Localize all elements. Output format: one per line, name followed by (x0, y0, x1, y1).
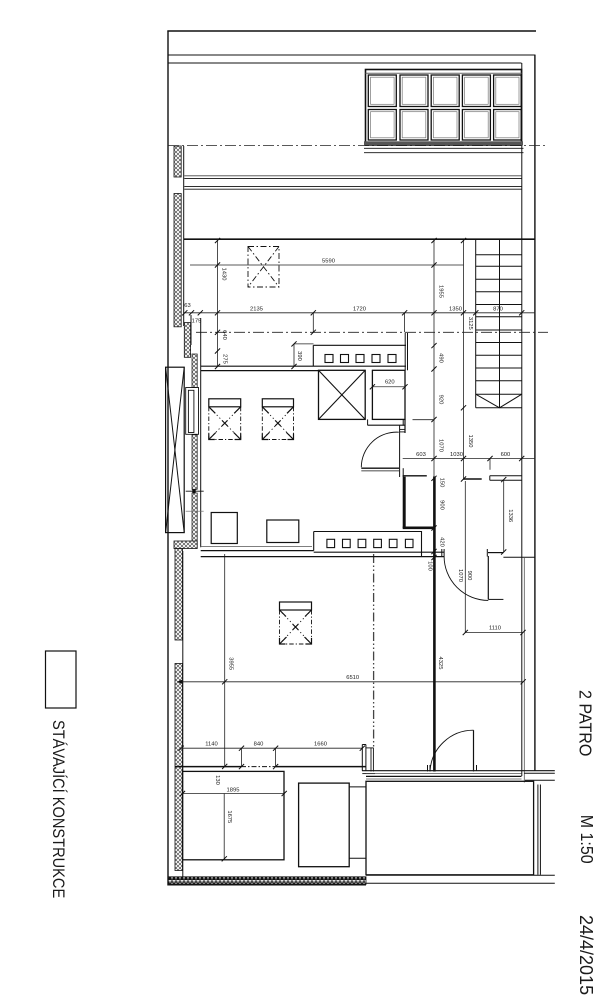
svg-text:840: 840 (254, 742, 264, 748)
svg-text:600: 600 (501, 452, 511, 458)
svg-text:420: 420 (439, 537, 445, 547)
svg-text:620: 620 (385, 380, 395, 386)
svg-text:920: 920 (438, 395, 444, 405)
svg-text:1660: 1660 (314, 742, 327, 748)
svg-text:1675: 1675 (226, 810, 232, 823)
svg-text:100: 100 (427, 561, 433, 571)
svg-text:900: 900 (439, 500, 445, 510)
svg-text:1140: 1140 (205, 742, 217, 748)
svg-text:2 PATRO: 2 PATRO (575, 690, 595, 756)
svg-text:3125: 3125 (467, 317, 473, 330)
svg-text:900: 900 (466, 571, 472, 581)
svg-text:1336: 1336 (507, 509, 513, 522)
svg-text:150: 150 (439, 478, 445, 488)
svg-text:1430: 1430 (221, 268, 227, 281)
svg-text:130: 130 (214, 775, 220, 785)
svg-text:6510: 6510 (346, 675, 359, 681)
svg-text:2135: 2135 (250, 306, 263, 312)
svg-text:63: 63 (184, 303, 190, 309)
svg-text:603: 603 (416, 452, 426, 458)
svg-text:1350: 1350 (449, 306, 462, 312)
svg-text:STÁVAJÍCÍ KONSTRUKCE: STÁVAJÍCÍ KONSTRUKCE (49, 720, 67, 898)
svg-text:175: 175 (192, 319, 202, 325)
svg-text:4325: 4325 (437, 657, 443, 670)
svg-text:24/4/2015: 24/4/2015 (576, 915, 596, 995)
svg-text:1895: 1895 (227, 788, 240, 794)
svg-text:1955: 1955 (438, 285, 444, 298)
svg-text:1350: 1350 (467, 435, 473, 448)
svg-text:1030: 1030 (450, 452, 463, 458)
svg-text:640: 640 (221, 330, 227, 340)
svg-text:1070: 1070 (457, 569, 463, 582)
svg-text:390: 390 (296, 351, 302, 361)
svg-text:M 1:50: M 1:50 (577, 815, 597, 864)
svg-text:870: 870 (493, 306, 503, 312)
svg-text:1110: 1110 (489, 626, 501, 632)
svg-text:490: 490 (438, 353, 444, 363)
svg-text:3955: 3955 (228, 657, 234, 670)
svg-text:1070: 1070 (438, 439, 444, 452)
svg-text:1720: 1720 (353, 306, 366, 312)
svg-text:5590: 5590 (322, 259, 335, 265)
svg-text:275: 275 (222, 354, 228, 364)
